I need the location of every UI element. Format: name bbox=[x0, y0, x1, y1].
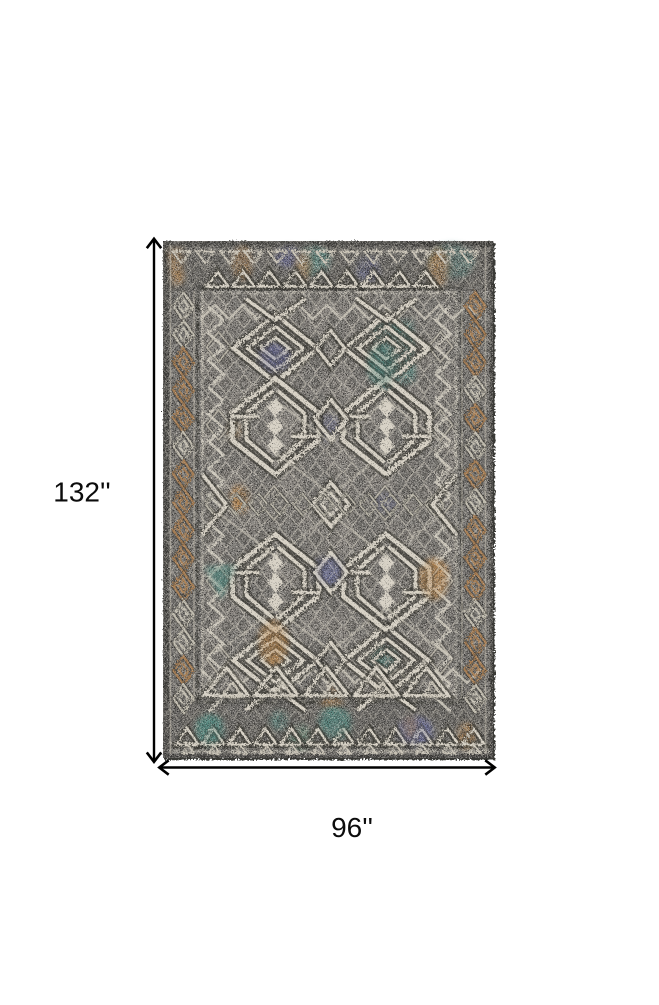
svg-text:132'': 132'' bbox=[53, 477, 110, 508]
svg-text:96'': 96'' bbox=[331, 812, 373, 843]
